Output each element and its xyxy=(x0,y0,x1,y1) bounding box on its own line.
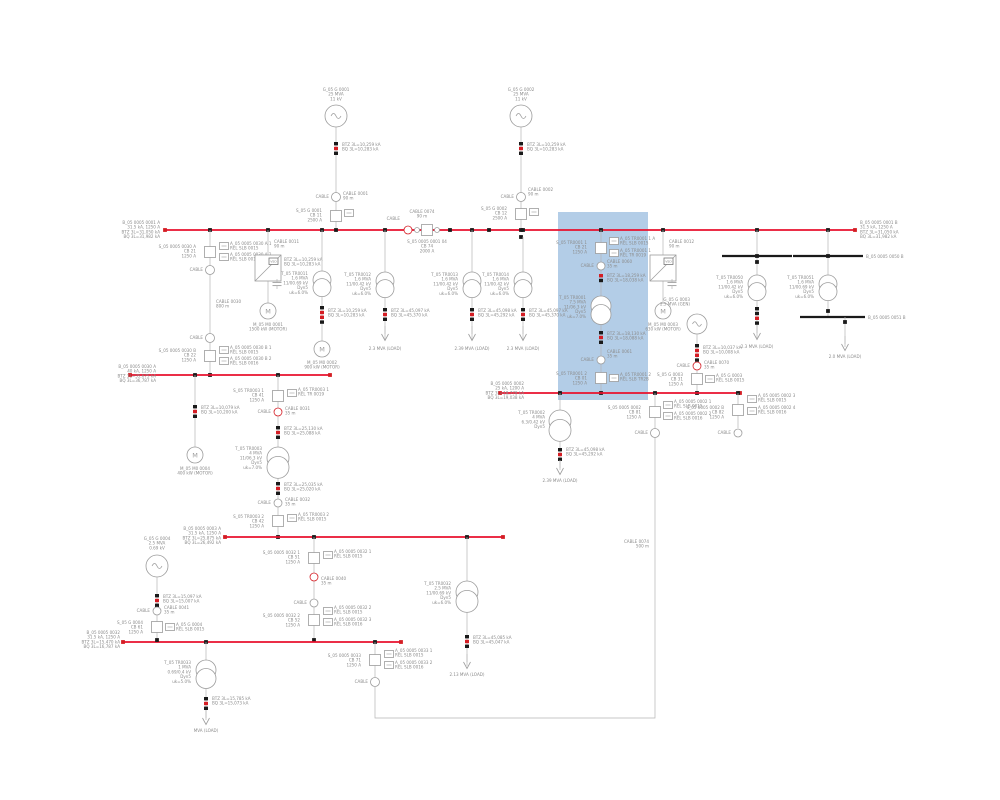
svg-text:2.13 MVA (LOAD): 2.13 MVA (LOAD) xyxy=(449,672,484,677)
relay-box[interactable] xyxy=(324,608,333,615)
label: S_05 0005 0001 04CB 742000 A xyxy=(407,239,447,253)
svg-text:S_05 G 0002CB 122500 A: S_05 G 0002CB 122500 A xyxy=(481,206,507,220)
svg-text:M_05 M0 0004400 kW (MOTOR): M_05 M0 0004400 kW (MOTOR) xyxy=(177,466,213,476)
label: BTZ 3L=10,259 kABQ 3L=10,283 kA xyxy=(328,308,367,318)
instrument-ct-circle[interactable] xyxy=(517,193,526,202)
svg-text:S_05 0005 0030 BCB 221250 A: S_05 0005 0030 BCB 221250 A xyxy=(159,348,197,362)
breaker-gen2[interactable] xyxy=(516,209,527,220)
status-indicator xyxy=(470,308,474,321)
label: CABLE 004135 m xyxy=(164,605,189,615)
bus-connection-node xyxy=(853,228,857,232)
relay-box[interactable] xyxy=(385,651,394,658)
svg-text:CABLE: CABLE xyxy=(501,194,515,199)
generator-2-label: G_05 G 000225 MVA11 kV xyxy=(508,87,535,101)
svg-text:A_05 TR0001 1 AREL SLB 0015: A_05 TR0001 1 AREL SLB 0015 xyxy=(620,236,655,246)
svg-text:A_05 G 0003REL SLB 0015: A_05 G 0003REL SLB 0015 xyxy=(716,373,745,383)
label: BTZ 3L=10,259 kABQ 3L=10,283 kA xyxy=(284,257,323,267)
label: CABLE xyxy=(501,194,515,199)
svg-text:BTZ 3L=18,259 kABQ 3L=18,038 k: BTZ 3L=18,259 kABQ 3L=18,038 kA xyxy=(607,273,646,283)
label: BTZ 3L=10,037 kABQ 3L=10,008 kA xyxy=(703,345,742,355)
svg-text:G_05 G 000125 MVA11 kV: G_05 G 000125 MVA11 kV xyxy=(323,87,350,101)
label: T_05 TR00141.6 MVA11/00.42 kVDyn5uk=6.0% xyxy=(481,272,509,296)
relay-box[interactable] xyxy=(664,402,673,409)
bus-connection-node xyxy=(163,228,167,232)
label: MVA (LOAD) xyxy=(194,728,219,733)
svg-text:M: M xyxy=(319,345,325,353)
instrument-ct-circle[interactable] xyxy=(206,266,215,275)
breaker-gen1[interactable] xyxy=(331,211,342,222)
svg-text:2.39 MVA (LOAD): 2.39 MVA (LOAD) xyxy=(542,478,577,483)
breaker-tr0003-lv[interactable] xyxy=(273,516,284,527)
label: CABLE 0074500 m xyxy=(624,539,649,549)
breaker-tr0001-lv[interactable] xyxy=(596,373,607,384)
svg-text:T_05 TR00111.6 MVA11/00.69 kVD: T_05 TR00111.6 MVA11/00.69 kVDyn5uk=6.0% xyxy=(280,271,308,295)
svg-text:BTZ 3L=45,098 kABQ 3L=45,292 k: BTZ 3L=45,098 kABQ 3L=45,292 kA xyxy=(566,447,605,457)
svg-text:CABLE: CABLE xyxy=(387,216,401,221)
label: BTZ 3L=15,097 kABQ 3L=15,007 kA xyxy=(163,594,202,604)
status-indicator xyxy=(519,142,523,155)
bus2b-label: B_05 0005 000225 kA, 1200 ABTZ 3L=18,778… xyxy=(485,381,524,400)
label: M_05 M0 0003630 kW (MOTOR) xyxy=(645,322,681,332)
label: CABLE xyxy=(294,600,308,605)
svg-text:A_05 0005 0030 B 1REL SLB 0015: A_05 0005 0030 B 1REL SLB 0015 xyxy=(230,345,272,355)
label: CABLE xyxy=(190,335,204,340)
svg-text:BTZ 3L=45,085 kABQ 3L=45,047 k: BTZ 3L=45,085 kABQ 3L=45,047 kA xyxy=(473,635,512,645)
status-indicator xyxy=(599,331,603,344)
transformer-0032[interactable] xyxy=(456,581,478,612)
svg-text:B_05 0005 0051 B: B_05 0005 0051 B xyxy=(868,315,906,320)
label: 2.3 MVA (LOAD) xyxy=(741,344,774,349)
label: BTZ 3L=45,098 kABQ 3L=45,292 kA xyxy=(478,308,517,318)
label: BTZ 3L=10,259 kABQ 3L=10,283 kA xyxy=(342,142,381,152)
svg-text:B_05 0005 0050 B: B_05 0005 0050 B xyxy=(866,254,904,259)
label: A_05 0005 0002 3REL SLB 0015 xyxy=(758,393,796,403)
instrument-ct-circle[interactable] xyxy=(310,599,318,607)
motor-2[interactable]: M xyxy=(314,341,330,357)
svg-text:BTZ 3L=15,097 kABQ 3L=15,007 k: BTZ 3L=15,097 kABQ 3L=15,007 kA xyxy=(163,594,202,604)
svg-text:A_05 0005 0002 3REL SLB 0015: A_05 0005 0002 3REL SLB 0015 xyxy=(758,393,796,403)
svg-text:CABLE 007490 m: CABLE 007490 m xyxy=(409,209,434,219)
label: CABLE 000290 m xyxy=(528,187,553,197)
svg-text:A_05 0005 0030 B 2REL SLB 0016: A_05 0005 0030 B 2REL SLB 0016 xyxy=(230,356,272,366)
bus1-label-left: B_05 0005 0001 A31.5 kA, 1250 ABTZ 3L=31… xyxy=(121,220,160,239)
transformer-0003[interactable] xyxy=(267,447,289,478)
svg-text:CABLE 004035 m: CABLE 004035 m xyxy=(321,576,346,586)
label: A_05 TR0003 1REL TR 0019 xyxy=(298,387,329,397)
generator-4[interactable] xyxy=(146,555,168,577)
label: A_05 0005 0032 3REL SLB 0016 xyxy=(334,617,372,627)
svg-text:S_05 0005 0032 1CB 511250 A: S_05 0005 0032 1CB 511250 A xyxy=(263,550,301,564)
generator-3-label: G_05 G 00032.5 MVA (GEN) xyxy=(660,297,690,307)
label: CABLE xyxy=(718,430,732,435)
circuit-breaker[interactable] xyxy=(370,655,381,666)
svg-text:2.39 MVA (LOAD): 2.39 MVA (LOAD) xyxy=(454,346,489,351)
svg-text:S_05 0005 0032 2CB 521250 A: S_05 0005 0032 2CB 521250 A xyxy=(263,613,301,627)
svg-text:S_05 G 0003CB 311250 A: S_05 G 0003CB 311250 A xyxy=(657,372,683,386)
svg-text:CABLE 004135 m: CABLE 004135 m xyxy=(164,605,189,615)
transformer-0014[interactable] xyxy=(514,272,532,298)
relay-box[interactable] xyxy=(385,662,394,669)
svg-text:CABLE: CABLE xyxy=(635,430,649,435)
transformer-0033[interactable] xyxy=(196,660,216,689)
svg-text:BTZ 3L=45,098 kABQ 3L=45,292 k: BTZ 3L=45,098 kABQ 3L=45,292 kA xyxy=(478,308,517,318)
breaker-tr0001-hv[interactable] xyxy=(596,243,607,254)
relay-box[interactable] xyxy=(706,376,715,383)
relay-box[interactable] xyxy=(530,209,539,216)
relay-box[interactable] xyxy=(220,254,229,261)
circuit-breaker[interactable] xyxy=(205,351,216,362)
label: T_05 TR00034 MVA11/06.3 kVDyn5uk=7.0% xyxy=(234,446,262,470)
relay-box[interactable] xyxy=(288,515,297,522)
bus-tie-ct[interactable] xyxy=(404,226,412,234)
instrument-ct-circle[interactable] xyxy=(597,262,605,270)
bus4-label: B_05 0005 003231.5 kA, 1250 ABTZ 3L=15,4… xyxy=(81,630,120,649)
bus-connection-node xyxy=(223,535,227,539)
svg-text:VSD: VSD xyxy=(665,260,672,264)
svg-text:S_05 TR0003 1CB 411250 A: S_05 TR0003 1CB 411250 A xyxy=(233,388,264,402)
vsd-drive-1[interactable]: VSD xyxy=(255,255,281,281)
label: CABLE xyxy=(581,357,595,362)
svg-text:T_05 TR00331 MVA0.69/0.4 kVDyn: T_05 TR00331 MVA0.69/0.4 kVDyn5uk=5.0% xyxy=(163,660,191,684)
load-arrow xyxy=(203,710,210,725)
label: S_05 0005 0033CB 711250 A xyxy=(328,653,362,667)
generator-2[interactable] xyxy=(510,105,532,127)
transformer-0011[interactable] xyxy=(313,271,331,297)
svg-text:CABLE: CABLE xyxy=(718,430,732,435)
label: BTZ 3L=10,079 kABQ 3L=10,200 kA xyxy=(201,405,240,415)
label: 2.3 MVA (LOAD) xyxy=(507,346,540,351)
svg-text:CABLE: CABLE xyxy=(294,600,308,605)
load-arrow xyxy=(557,460,564,475)
svg-text:BTZ 3L=18,130 kABQ 3L=18,088 k: BTZ 3L=18,130 kABQ 3L=18,088 kA xyxy=(607,331,646,341)
svg-text:B_05 0005 0001 A31.5 kA, 1250: B_05 0005 0001 A31.5 kA, 1250 ABTZ 3L=31… xyxy=(121,220,160,239)
label: CABLE xyxy=(258,500,272,505)
relay-box[interactable] xyxy=(748,408,757,415)
bus3-label: B_05 0005 0003 A31.5 kA, 1250 ABTZ 3L=25… xyxy=(182,526,221,545)
status-indicator xyxy=(465,635,469,648)
status-indicator xyxy=(155,594,159,607)
svg-text:S_05 0005 0033CB 711250 A: S_05 0005 0033CB 711250 A xyxy=(328,653,362,667)
circuit-breaker[interactable] xyxy=(309,615,320,626)
status-indicator xyxy=(276,482,280,495)
svg-text:A_05 0005 0002 4REL SLB 0016: A_05 0005 0002 4REL SLB 0016 xyxy=(758,405,796,415)
svg-text:2.3 MVA (LOAD): 2.3 MVA (LOAD) xyxy=(507,346,540,351)
label: A_05 0005 0032 2REL SLB 0015 xyxy=(334,605,372,615)
label: BTZ 3L=18,130 kABQ 3L=18,088 kA xyxy=(607,331,646,341)
label: T_05 TR00024 MVA6.3/0.42 kVDyn5 xyxy=(517,410,545,429)
svg-text:CABLE 001290 m: CABLE 001290 m xyxy=(669,239,694,249)
generator-1-label: G_05 G 000125 MVA11 kV xyxy=(323,87,350,101)
svg-text:S_05 G 0001CB 112500 A: S_05 G 0001CB 112500 A xyxy=(296,208,322,222)
svg-text:T_05 TR00024 MVA6.3/0.42 kVDyn: T_05 TR00024 MVA6.3/0.42 kVDyn5 xyxy=(517,410,545,429)
svg-text:M_05 M0 0002900 kW (MOTOR): M_05 M0 0002900 kW (MOTOR) xyxy=(304,360,340,370)
label: CABLE xyxy=(387,216,401,221)
svg-text:2.3 MVA (LOAD): 2.3 MVA (LOAD) xyxy=(369,346,402,351)
instrument-ct-circle[interactable] xyxy=(693,362,701,370)
svg-text:A_05 0005 0030 A 1REL SLB 0015: A_05 0005 0030 A 1REL SLB 0015 xyxy=(230,241,272,251)
bus1-label-right: B_05 0005 0001 B31.5 kA, 1250 ABTZ 3L=31… xyxy=(860,220,899,239)
single-line-diagram: B_05 0005 0001 A31.5 kA, 1250 ABTZ 3L=31… xyxy=(0,0,1000,800)
label: A_05 0005 0030 B 1REL SLB 0015 xyxy=(230,345,272,355)
svg-text:2.0 MVA (LOAD): 2.0 MVA (LOAD) xyxy=(829,354,862,359)
generator-1[interactable] xyxy=(325,105,347,127)
svg-text:S_05 G 0004CB 611250 A: S_05 G 0004CB 611250 A xyxy=(117,620,143,634)
relay-box[interactable] xyxy=(345,210,354,217)
instrument-ct-circle[interactable] xyxy=(597,356,605,364)
svg-text:G_05 G 000225 MVA11 kV: G_05 G 000225 MVA11 kV xyxy=(508,87,535,101)
label: S_05 G 0004CB 611250 A xyxy=(117,620,143,634)
bus-connection-node xyxy=(843,320,847,324)
status-indicator xyxy=(276,426,280,439)
breaker-tr0003-hv[interactable] xyxy=(273,391,284,402)
svg-text:BTZ 3L=25,035 kABQ 3L=25,020 k: BTZ 3L=25,035 kABQ 3L=25,020 kA xyxy=(284,482,323,492)
bus-connection-node xyxy=(155,638,159,642)
label: BTZ 3L=25,130 kABQ 3L=25,088 kA xyxy=(284,426,323,436)
svg-text:T_05 TR00141.6 MVA11/00.42 kVD: T_05 TR00141.6 MVA11/00.42 kVDyn5uk=6.0% xyxy=(481,272,509,296)
svg-text:CABLE 0030800 m: CABLE 0030800 m xyxy=(216,299,241,309)
status-indicator xyxy=(193,405,197,418)
relay-box[interactable] xyxy=(610,238,619,245)
svg-text:A_05 0005 0033 1REL SLB 0015: A_05 0005 0033 1REL SLB 0015 xyxy=(395,648,433,658)
label: 2.39 MVA (LOAD) xyxy=(454,346,489,351)
motor-4[interactable]: M xyxy=(187,447,203,463)
breaker-gen3[interactable] xyxy=(692,374,703,385)
transformer-0013[interactable] xyxy=(463,272,481,298)
generator-4-label: G_05 G 00042.5 MVA0.69 kV xyxy=(144,536,171,550)
bus-tie-breaker[interactable] xyxy=(422,225,433,236)
label: CABLE xyxy=(677,363,691,368)
transformer-0050[interactable] xyxy=(748,275,766,301)
instrument-ct-circle[interactable] xyxy=(206,334,215,343)
label: CABLE 003235 m xyxy=(285,497,310,507)
bus-connection-node xyxy=(334,228,338,232)
svg-text:CABLE: CABLE xyxy=(190,267,204,272)
svg-text:BTZ 3L=10,259 kABQ 3L=10,283 k: BTZ 3L=10,259 kABQ 3L=10,283 kA xyxy=(342,142,381,152)
svg-text:M_05 M0 0003630 kW (MOTOR): M_05 M0 0003630 kW (MOTOR) xyxy=(645,322,681,332)
label: M_05 M0 00011500 kW (MOTOR) xyxy=(249,322,287,332)
label: S_05 G 0001CB 112500 A xyxy=(296,208,322,222)
bus2-label: B_05 0005 0030 A40 kA, 1250 ABTZ 3L=35,6… xyxy=(117,364,156,383)
label: BTZ 3L=45,098 kABQ 3L=45,292 kA xyxy=(566,447,605,457)
svg-text:B_05 0005 0001 B31.5 kA, 1250: B_05 0005 0001 B31.5 kA, 1250 ABTZ 3L=31… xyxy=(860,220,899,239)
bus-connection-node xyxy=(121,640,125,644)
svg-text:CABLE 007035 m: CABLE 007035 m xyxy=(704,360,729,370)
svg-text:M: M xyxy=(192,451,198,459)
relay-box[interactable] xyxy=(748,396,757,403)
transformer-0002[interactable] xyxy=(549,410,571,441)
label: T_05 TR00111.6 MVA11/00.69 kVDyn5uk=6.0% xyxy=(280,271,308,295)
svg-text:T_05 TR00322.5 MVA11/00.69 kVD: T_05 TR00322.5 MVA11/00.69 kVDyn5uk=6.0% xyxy=(423,581,451,605)
instrument-ct-circle[interactable] xyxy=(310,573,318,581)
relay-box[interactable] xyxy=(220,347,229,354)
svg-text:A_05 0005 0032 3REL SLB 0016: A_05 0005 0032 3REL SLB 0016 xyxy=(334,617,372,627)
svg-text:CABLE 003135 m: CABLE 003135 m xyxy=(285,406,310,416)
circuit-breaker[interactable] xyxy=(309,553,320,564)
svg-text:CABLE: CABLE xyxy=(258,500,272,505)
svg-text:A_05 0005 0033 2REL SLB 0016: A_05 0005 0033 2REL SLB 0016 xyxy=(395,660,433,670)
label: T_05 TR00511.6 MVA11/00.69 kVDyn5uk=6.0% xyxy=(786,275,814,299)
label: 2.0 MVA (LOAD) xyxy=(829,354,862,359)
svg-text:BTZ 3L=10,259 kABQ 3L=10,283 k: BTZ 3L=10,259 kABQ 3L=10,283 kA xyxy=(527,142,566,152)
label: T_05 TR00501.6 MVA11/00.42 kVDyn5uk=6.0% xyxy=(715,275,743,299)
svg-text:A_05 G 0004REL SLB 0015: A_05 G 0004REL SLB 0015 xyxy=(176,622,205,632)
label: A_05 G 0004REL SLB 0015 xyxy=(176,622,205,632)
label: A_05 0005 0030 A 1REL SLB 0015 xyxy=(230,241,272,251)
relay-box[interactable] xyxy=(664,413,673,420)
load-arrow xyxy=(464,654,471,669)
label: BTZ 3L=18,259 kABQ 3L=18,038 kA xyxy=(607,273,646,283)
instrument-ct-circle[interactable] xyxy=(435,228,440,233)
status-indicator xyxy=(383,308,387,321)
transformer-0051[interactable] xyxy=(819,275,837,301)
bus-connection-node xyxy=(755,254,759,258)
instrument-ct-circle[interactable] xyxy=(734,429,742,437)
svg-text:T_05 TR00501.6 MVA11/00.42 kVD: T_05 TR00501.6 MVA11/00.42 kVDyn5uk=6.0% xyxy=(715,275,743,299)
relay-box[interactable] xyxy=(324,619,333,626)
svg-text:CABLE 003235 m: CABLE 003235 m xyxy=(285,497,310,507)
label: A_05 G 0003REL SLB 0015 xyxy=(716,373,745,383)
label: S_05 TR0003 1CB 411250 A xyxy=(233,388,264,402)
label: M_05 M0 0002900 kW (MOTOR) xyxy=(304,360,340,370)
svg-text:MVA (LOAD): MVA (LOAD) xyxy=(194,728,219,733)
label: A_05 0005 0002 4REL SLB 0016 xyxy=(758,405,796,415)
instrument-ct-circle[interactable] xyxy=(153,607,161,615)
svg-text:CABLE: CABLE xyxy=(355,679,369,684)
instrument-ct-circle[interactable] xyxy=(371,678,380,687)
instrument-ct-circle[interactable] xyxy=(274,499,282,507)
svg-text:BTZ 3L=10,037 kABQ 3L=10,008 k: BTZ 3L=10,037 kABQ 3L=10,008 kA xyxy=(703,345,742,355)
svg-text:M: M xyxy=(265,307,271,315)
instrument-ct-circle[interactable] xyxy=(415,228,420,233)
svg-text:B_05 0005 003231.5 kA, 1250 AB: B_05 0005 003231.5 kA, 1250 ABTZ 3L=15,4… xyxy=(81,630,120,649)
label: BTZ 3L=45,097 kABQ 3L=45,370 kA xyxy=(529,308,568,318)
label: CABLE xyxy=(190,267,204,272)
svg-text:CABLE: CABLE xyxy=(258,409,272,414)
bus-connection-node xyxy=(328,373,332,377)
transformer-0012[interactable] xyxy=(376,272,394,298)
svg-text:CABLE 001190 m: CABLE 001190 m xyxy=(274,239,299,249)
svg-text:BTZ 3L=10,259 kABQ 3L=10,283 k: BTZ 3L=10,259 kABQ 3L=10,283 kA xyxy=(328,308,367,318)
label: BTZ 3L=45,085 kABQ 3L=45,047 kA xyxy=(473,635,512,645)
label: BTZ 3L=15,785 kABQ 3L=15,073 kA xyxy=(212,696,251,706)
vsd-drive-2[interactable]: VSD xyxy=(650,255,676,281)
bus-connection-node xyxy=(519,235,523,239)
label: 2.13 MVA (LOAD) xyxy=(449,672,484,677)
svg-text:CABLE: CABLE xyxy=(581,357,595,362)
bus-connection-node xyxy=(826,254,830,258)
svg-text:A_05 0005 0002 2REL SLB 0016: A_05 0005 0002 2REL SLB 0016 xyxy=(674,411,712,421)
svg-text:G_05 G 00032.5 MVA (GEN): G_05 G 00032.5 MVA (GEN) xyxy=(660,297,690,307)
instrument-ct-circle[interactable] xyxy=(332,193,341,202)
status-indicator xyxy=(334,142,338,155)
bus-connection-node xyxy=(826,309,830,313)
label: A_05 0005 0030 B 2REL SLB 0016 xyxy=(230,356,272,366)
label: CABLE 004035 m xyxy=(321,576,346,586)
label: CABLE 001290 m xyxy=(669,239,694,249)
label: S_05 G 0002CB 122500 A xyxy=(481,206,507,220)
relay-box[interactable] xyxy=(220,243,229,250)
svg-text:B_05 0005 000225 kA, 1200 ABTZ: B_05 0005 000225 kA, 1200 ABTZ 3L=18,778… xyxy=(485,381,524,400)
svg-text:T_05 TR00121.6 MVA11/00.42 kVD: T_05 TR00121.6 MVA11/00.42 kVDyn5uk=6.0% xyxy=(343,272,371,296)
relay-box[interactable] xyxy=(220,358,229,365)
label: A_05 TR0001 2REL SLB TR2B xyxy=(620,372,651,382)
label: CABLE 003135 m xyxy=(285,406,310,416)
busbar-0051-label: B_05 0005 0051 B xyxy=(868,315,906,320)
label: 2.3 MVA (LOAD) xyxy=(369,346,402,351)
svg-text:BTZ 3L=45,097 kABQ 3L=45,370 k: BTZ 3L=45,097 kABQ 3L=45,370 kA xyxy=(529,308,568,318)
breaker-gen4[interactable] xyxy=(152,622,163,633)
relay-box[interactable] xyxy=(610,375,619,382)
label: A_05 0005 0033 1REL SLB 0015 xyxy=(395,648,433,658)
svg-text:A_05 TR0003 2REL SLB 0015: A_05 TR0003 2REL SLB 0015 xyxy=(298,512,329,522)
svg-text:BTZ 3L=45,097 kABQ 3L=45,370 k: BTZ 3L=45,097 kABQ 3L=45,370 kA xyxy=(391,308,430,318)
bus-connection-node xyxy=(487,228,491,232)
status-indicator xyxy=(204,697,208,710)
label: S_05 0005 0002CB 811250 A xyxy=(608,405,642,419)
relay-box[interactable] xyxy=(166,624,175,631)
svg-text:2.3 MVA (LOAD): 2.3 MVA (LOAD) xyxy=(741,344,774,349)
label: T_05 TR00322.5 MVA11/00.69 kVDyn5uk=6.0% xyxy=(423,581,451,605)
instrument-ct-circle[interactable] xyxy=(274,408,282,416)
svg-text:CABLE: CABLE xyxy=(316,194,330,199)
label: S_05 G 0003CB 311250 A xyxy=(657,372,683,386)
transformer-0001[interactable] xyxy=(591,296,611,325)
label: CABLE xyxy=(137,608,151,613)
motor-1[interactable]: M xyxy=(260,303,276,319)
label: BTZ 3L=25,035 kABQ 3L=25,020 kA xyxy=(284,482,323,492)
svg-text:CABLE: CABLE xyxy=(137,608,151,613)
svg-text:A_05 0005 0032 1REL SLB 0015: A_05 0005 0032 1REL SLB 0015 xyxy=(334,549,372,559)
tie-cable-route xyxy=(375,437,655,718)
label: CABLE xyxy=(316,194,330,199)
relay-box[interactable] xyxy=(288,390,297,397)
load-arrow xyxy=(842,336,849,351)
generator-3[interactable] xyxy=(687,314,707,334)
label: BTZ 3L=45,097 kABQ 3L=45,370 kA xyxy=(391,308,430,318)
svg-text:CABLE 0074500 m: CABLE 0074500 m xyxy=(624,539,649,549)
svg-text:BTZ 3L=25,130 kABQ 3L=25,088 k: BTZ 3L=25,130 kABQ 3L=25,088 kA xyxy=(284,426,323,436)
relay-box[interactable] xyxy=(610,250,619,257)
label: CABLE 0030800 m xyxy=(216,299,241,309)
circuit-breaker[interactable] xyxy=(650,407,661,418)
busbar-0050-b-label: B_05 0005 0050 B xyxy=(866,254,904,259)
svg-text:A_05 0005 0032 2REL SLB 0015: A_05 0005 0032 2REL SLB 0015 xyxy=(334,605,372,615)
label: CABLE 007490 m xyxy=(409,209,434,219)
circuit-breaker[interactable] xyxy=(733,405,744,416)
relay-box[interactable] xyxy=(324,552,333,559)
label: CABLE xyxy=(355,679,369,684)
label: S_05 0005 0032 2CB 521250 A xyxy=(263,613,301,627)
label: CABLE 001190 m xyxy=(274,239,299,249)
svg-text:S_05 0005 0002CB 811250 A: S_05 0005 0002CB 811250 A xyxy=(608,405,642,419)
label: M_05 M0 0004400 kW (MOTOR) xyxy=(177,466,213,476)
label: S_05 TR0003 2CB 421250 A xyxy=(233,514,264,528)
svg-text:CABLE 000190 m: CABLE 000190 m xyxy=(343,191,368,201)
svg-text:A_05 TR0001 2REL SLB TR2B: A_05 TR0001 2REL SLB TR2B xyxy=(620,372,651,382)
label: T_05 TR00131.6 MVA11/00.42 kVDyn5uk=6.0% xyxy=(430,272,458,296)
svg-text:B_05 0005 0030 A40 kA, 1250 AB: B_05 0005 0030 A40 kA, 1250 ABTZ 3L=35,6… xyxy=(117,364,156,383)
label: A_05 TR0003 2REL SLB 0015 xyxy=(298,512,329,522)
instrument-ct-circle[interactable] xyxy=(651,429,660,438)
svg-text:S_05 0005 0030 ACB 211250 A: S_05 0005 0030 ACB 211250 A xyxy=(159,244,197,258)
diagram-canvas: B_05 0005 0001 A31.5 kA, 1250 ABTZ 3L=31… xyxy=(0,0,1000,800)
svg-text:CABLE: CABLE xyxy=(581,263,595,268)
svg-text:VSD: VSD xyxy=(270,260,277,264)
circuit-breaker[interactable] xyxy=(205,247,216,258)
label: T_05 TR00331 MVA0.69/0.4 kVDyn5uk=5.0% xyxy=(163,660,191,684)
svg-text:T_05 TR00131.6 MVA11/00.42 kVD: T_05 TR00131.6 MVA11/00.42 kVDyn5uk=6.0% xyxy=(430,272,458,296)
svg-text:BTZ 3L=10,259 kABQ 3L=10,283 k: BTZ 3L=10,259 kABQ 3L=10,283 kA xyxy=(284,257,323,267)
